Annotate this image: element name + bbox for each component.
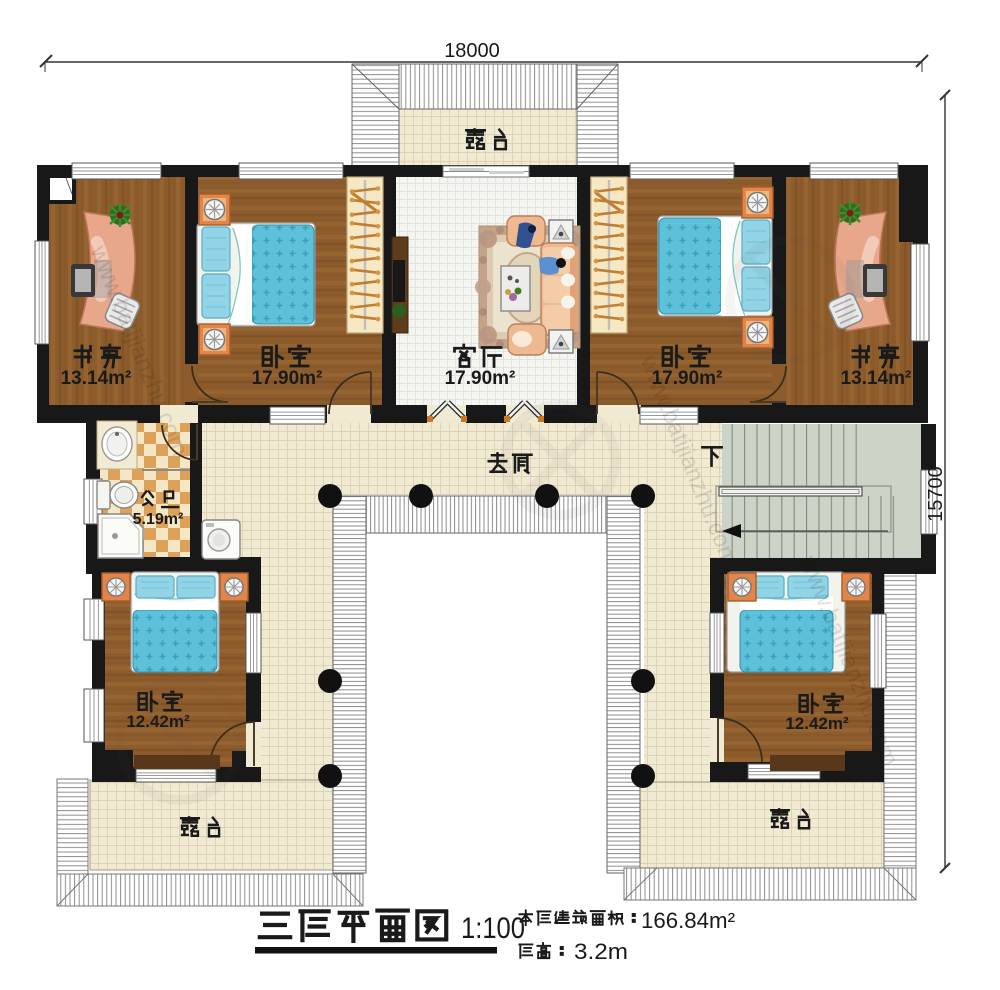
svg-text:3.2m: 3.2m <box>574 939 628 964</box>
svg-text:5.19m²: 5.19m² <box>133 511 184 528</box>
svg-text:15700: 15700 <box>925 466 947 522</box>
svg-text:18000: 18000 <box>444 40 500 62</box>
svg-text:17.90m²: 17.90m² <box>445 368 516 389</box>
svg-text:13.14m²: 13.14m² <box>61 368 132 389</box>
svg-text:17.90m²: 17.90m² <box>252 368 323 389</box>
svg-text:166.84m²: 166.84m² <box>641 908 735 933</box>
svg-text:1:100: 1:100 <box>461 912 525 945</box>
svg-text:13.14m²: 13.14m² <box>841 368 912 389</box>
svg-text:12.42m²: 12.42m² <box>785 714 849 733</box>
